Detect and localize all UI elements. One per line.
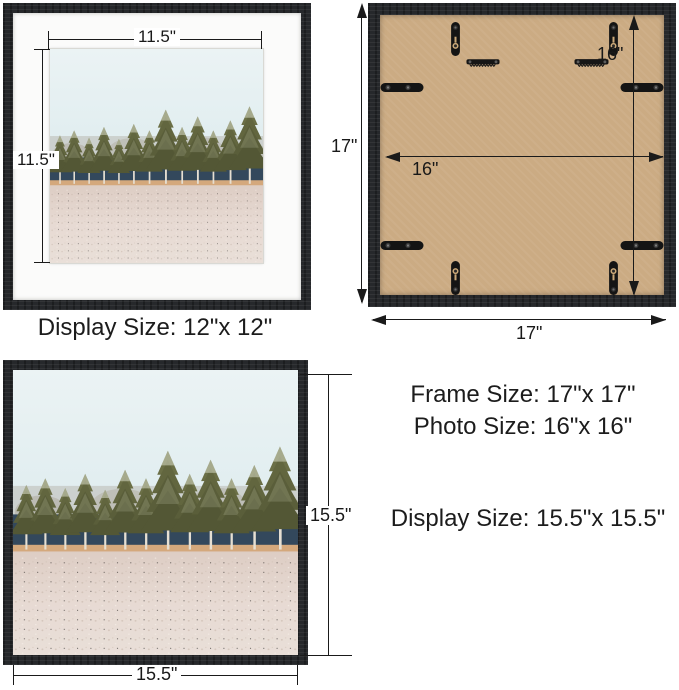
back-outer-width-label: 17" [516, 324, 542, 343]
arrow-up-icon [357, 3, 367, 18]
corner-strap-icon [380, 239, 424, 252]
front-width-tick-left [48, 31, 49, 49]
keyhole-hanger-icon [608, 260, 619, 296]
front-height-label: 11.5" [13, 151, 59, 169]
spec-frame-size: Frame Size: 17"x 17" [373, 381, 673, 409]
back-outer-height-line [361, 6, 362, 302]
front-height-tick-top [34, 49, 50, 50]
photo-height-label: 15.5" [306, 506, 355, 525]
front-caption: Display Size: 12"x 12" [10, 314, 300, 342]
back-inner-width-label: 16" [412, 160, 438, 179]
back-outer-height-label: 17" [331, 137, 357, 156]
keyhole-hanger-icon [450, 21, 461, 57]
front-width-tick-right [261, 31, 262, 49]
spec-photo-size: Photo Size: 16"x 16" [373, 413, 673, 441]
corner-strap-icon [620, 81, 664, 94]
spec-display-size: Display Size: 15.5"x 15.5" [378, 505, 678, 533]
product-dimension-diagram: 11.5" 11.5" Display Size: 12"x 12" 17" [0, 0, 679, 690]
back-outer-width-line [373, 319, 666, 320]
keyhole-hanger-icon [450, 260, 461, 296]
corner-strap-icon [620, 239, 664, 252]
arrow-right-icon [651, 315, 666, 325]
back-inner-width-line [387, 156, 663, 157]
arrow-right-icon [649, 152, 664, 162]
back-frame [368, 3, 676, 307]
arrow-down-icon [357, 289, 367, 304]
arrow-up-icon [629, 15, 639, 30]
back-inner-height-label: 16" [597, 45, 623, 64]
corner-strap-icon [380, 81, 424, 94]
photo-frame [3, 360, 308, 665]
arrow-left-icon [385, 152, 400, 162]
arrow-left-icon [371, 315, 386, 325]
mat-opening [50, 49, 263, 263]
photo-height-tick-top [300, 374, 352, 375]
front-height-tick-bottom [34, 262, 50, 263]
sawtooth-hanger-icon [466, 58, 500, 67]
photo-width-label: 15.5" [132, 665, 181, 684]
winter-trees-photo [50, 49, 263, 263]
arrow-down-icon [629, 281, 639, 296]
winter-trees-photo [13, 370, 298, 655]
photo-height-tick-bottom [300, 655, 352, 656]
front-width-label: 11.5" [134, 28, 180, 46]
